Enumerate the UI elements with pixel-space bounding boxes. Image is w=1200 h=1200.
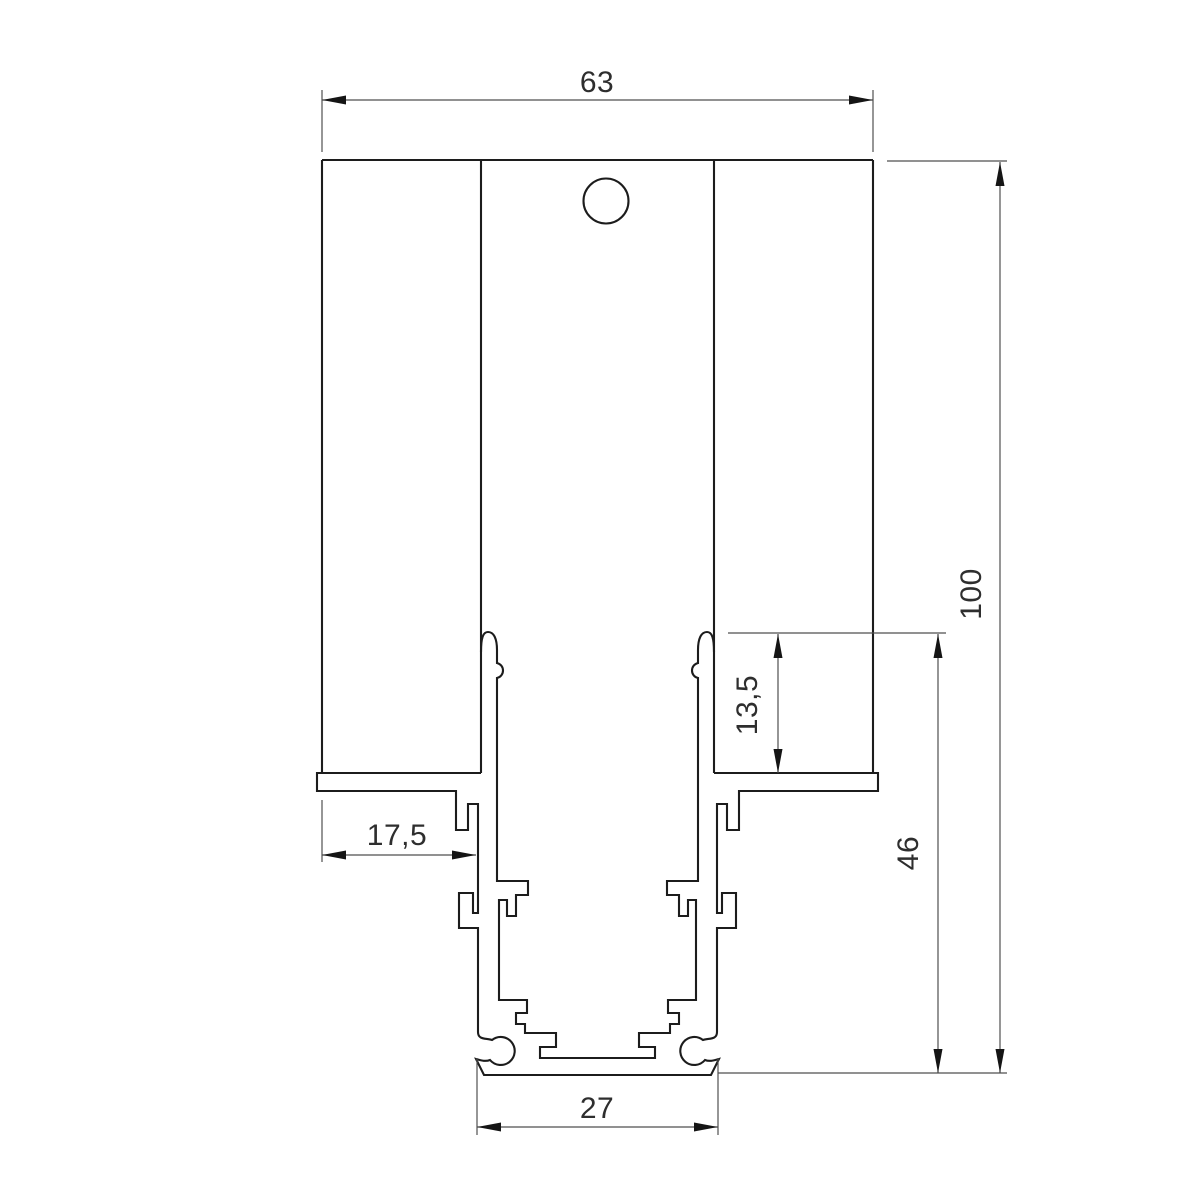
dimension-bottom-width: 27 — [477, 1058, 718, 1135]
dim-label-inner-offset: 13,5 — [731, 675, 764, 735]
profile-right-half — [598, 160, 879, 1075]
dim-label-left-flange-width: 17,5 — [367, 819, 427, 852]
dimension-inner-offset: 13,5 — [731, 634, 783, 773]
arrow-right-icon — [452, 851, 476, 860]
dim-label-overall-height: 100 — [955, 568, 988, 620]
dimension-left-flange-width: 17,5 — [322, 800, 476, 862]
arrow-up-icon — [934, 634, 943, 658]
technical-drawing-canvas: 63 100 46 13,5 17,5 27 — [0, 0, 1200, 1200]
arrow-up-icon — [774, 634, 783, 658]
dimension-top-width: 63 — [322, 66, 873, 152]
arrow-up-icon — [996, 162, 1005, 186]
arrow-down-icon — [996, 1049, 1005, 1073]
arrow-down-icon — [934, 1049, 943, 1073]
dim-label-bottom-width: 27 — [580, 1092, 614, 1125]
profile-left-half — [317, 160, 598, 1075]
arrow-right-icon — [849, 96, 873, 105]
arrow-left-icon — [322, 96, 346, 105]
dim-label-top-width: 63 — [580, 66, 614, 99]
arrow-down-icon — [774, 749, 783, 773]
profile-inner-rib — [481, 632, 598, 1058]
dim-label-lower-height: 46 — [892, 836, 925, 870]
arrow-right-icon — [694, 1123, 718, 1132]
drawing-sheet: 63 100 46 13,5 17,5 27 — [0, 0, 1200, 1200]
arrow-left-icon — [477, 1123, 501, 1132]
mounting-hole-icon — [584, 179, 629, 224]
profile-outer-contour — [317, 160, 598, 1075]
profile-outer-contour — [598, 160, 879, 1075]
dimension-overall-height: 100 — [718, 161, 1007, 1073]
arrow-left-icon — [322, 851, 346, 860]
profile-inner-rib — [598, 632, 715, 1058]
